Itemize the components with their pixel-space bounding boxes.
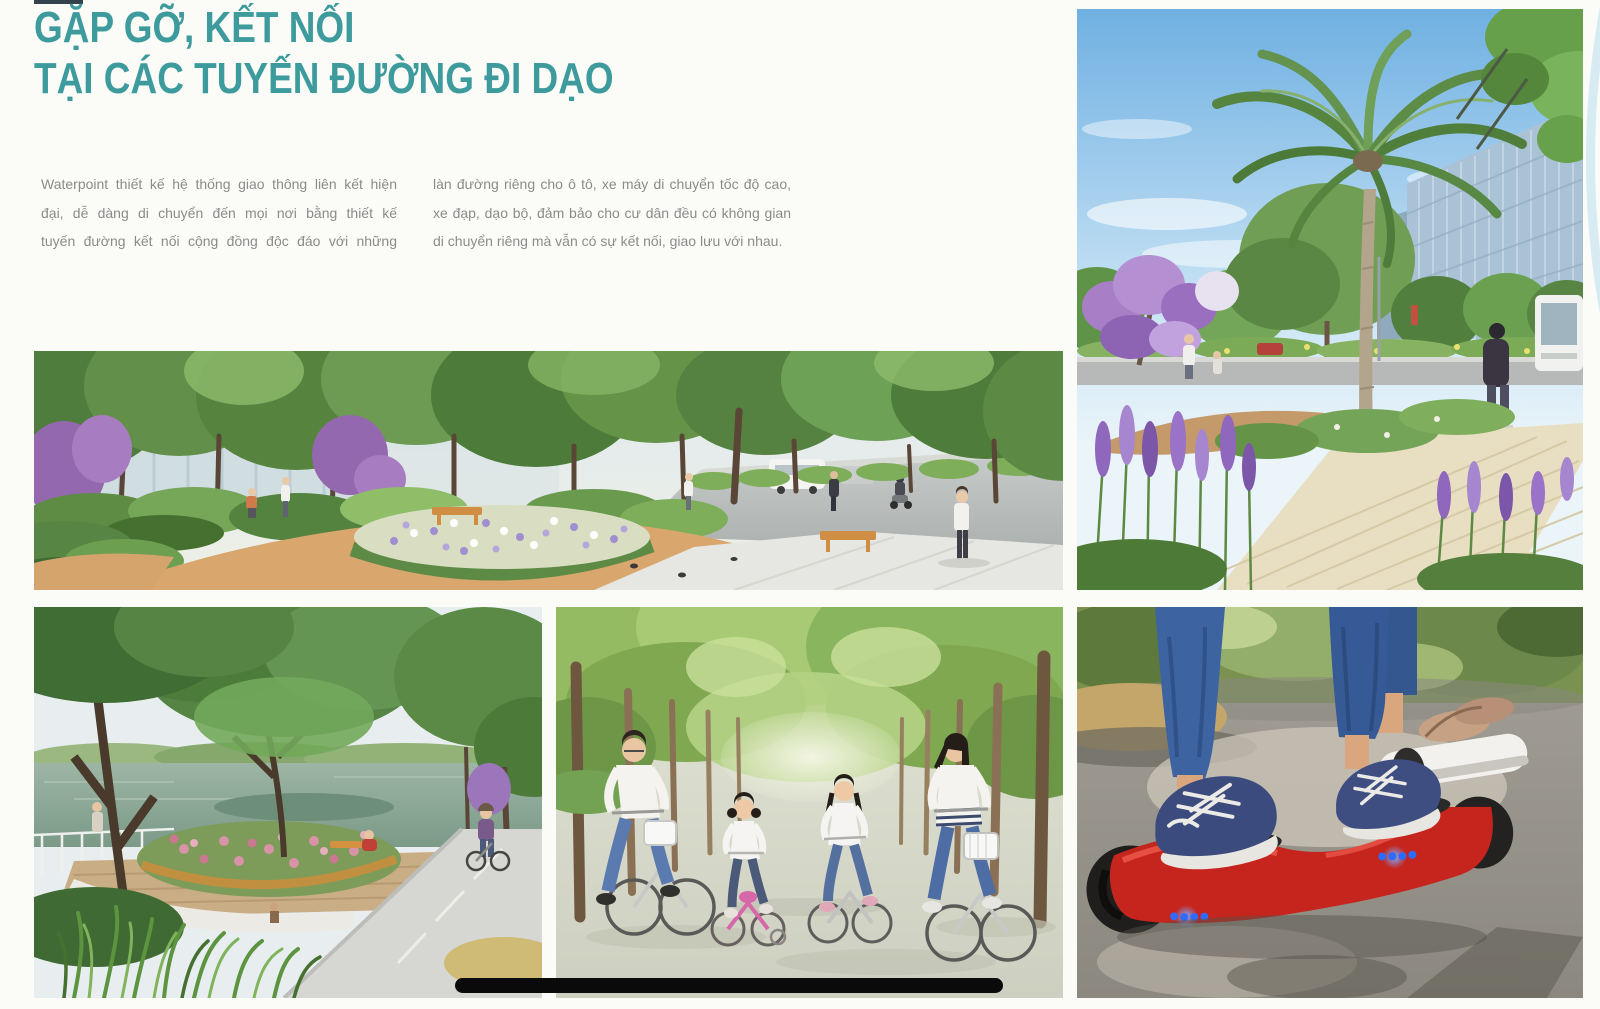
red-banner [1411, 305, 1418, 325]
hoverboard-illustration [1077, 607, 1583, 998]
lakeside-illustration [34, 607, 542, 998]
board-shadow [1117, 915, 1487, 959]
intro-left-line-1: Waterpoint thiết kế hệ thống giao thông … [41, 170, 397, 199]
intro-right-line-1: làn đường riêng cho ô tô, xe máy di chuy… [433, 170, 791, 199]
intro-paragraph-right: làn đường riêng cho ô tô, xe máy di chuy… [433, 170, 791, 256]
bus [1535, 295, 1583, 371]
intro-paragraph-left: Waterpoint thiết kế hệ thống giao thông … [41, 170, 397, 256]
palm-walkway-illustration [1077, 9, 1583, 590]
photo-boulevard-render [34, 351, 1063, 590]
video-progress-indicator[interactable] [455, 978, 1003, 993]
page-title-line-2: TẠI CÁC TUYẾN ĐƯỜNG ĐI DẠO [34, 53, 614, 104]
brochure-page: GẶP GỠ, KẾT NỐI TẠI CÁC TUYẾN ĐƯỜNG ĐI D… [0, 0, 1600, 1009]
family-cycling-illustration [556, 607, 1063, 998]
flower-bed [352, 505, 652, 573]
round-flower-bed [137, 821, 401, 897]
intro-left-line-2: đại, dễ dàng di chuyển đến mọi nơi bằng … [41, 199, 397, 228]
intro-left-line-3: tuyến đường kết nối cộng đồng độc đáo vớ… [41, 227, 397, 256]
page-title-line-1: GẶP GỠ, KẾT NỐI [34, 2, 614, 53]
water-lilies [214, 793, 394, 821]
photo-lakeside-park [34, 607, 542, 998]
boulevard-illustration [34, 351, 1063, 590]
photo-family-cycling [556, 607, 1063, 998]
decorative-arc [1586, 0, 1600, 1009]
red-car [1257, 343, 1283, 355]
photo-palm-walkway [1077, 9, 1583, 590]
photo-hoverboard-closeup [1077, 607, 1583, 998]
page-title: GẶP GỠ, KẾT NỐI TẠI CÁC TUYẾN ĐƯỜNG ĐI D… [34, 2, 724, 104]
intro-right-line-3: di chuyển riêng mà vẫn có sự kết nối, gi… [433, 227, 791, 256]
intro-right-line-2: xe đạp, dạo bộ, đảm bảo cho cư dân đều c… [433, 199, 791, 228]
